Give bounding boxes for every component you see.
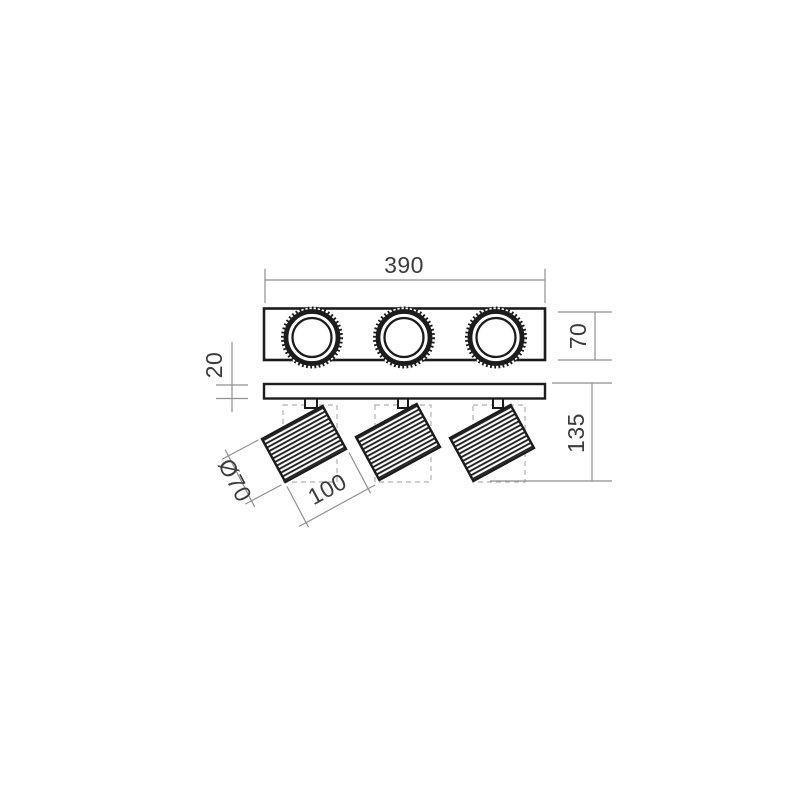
mounting-plate-side	[264, 384, 545, 399]
spot-bezel-2	[374, 308, 434, 368]
dim-label-canopy-thickness: 20	[201, 352, 227, 379]
dim-label-overall-width: 390	[384, 252, 424, 278]
inner-ring	[477, 318, 516, 357]
top-view	[264, 308, 545, 368]
inner-ring	[293, 318, 332, 357]
dim-label-plate-depth: 70	[565, 323, 591, 350]
dim-label-overall-height: 135	[563, 413, 589, 453]
inner-ring	[385, 318, 424, 357]
dimension-drawing: 390 70 20 135 Ø70 100	[0, 0, 800, 800]
drawing-canvas: 390 70 20 135 Ø70 100	[0, 0, 800, 800]
spot-bezel-1	[282, 308, 342, 368]
spot-bezel-3	[466, 308, 526, 368]
